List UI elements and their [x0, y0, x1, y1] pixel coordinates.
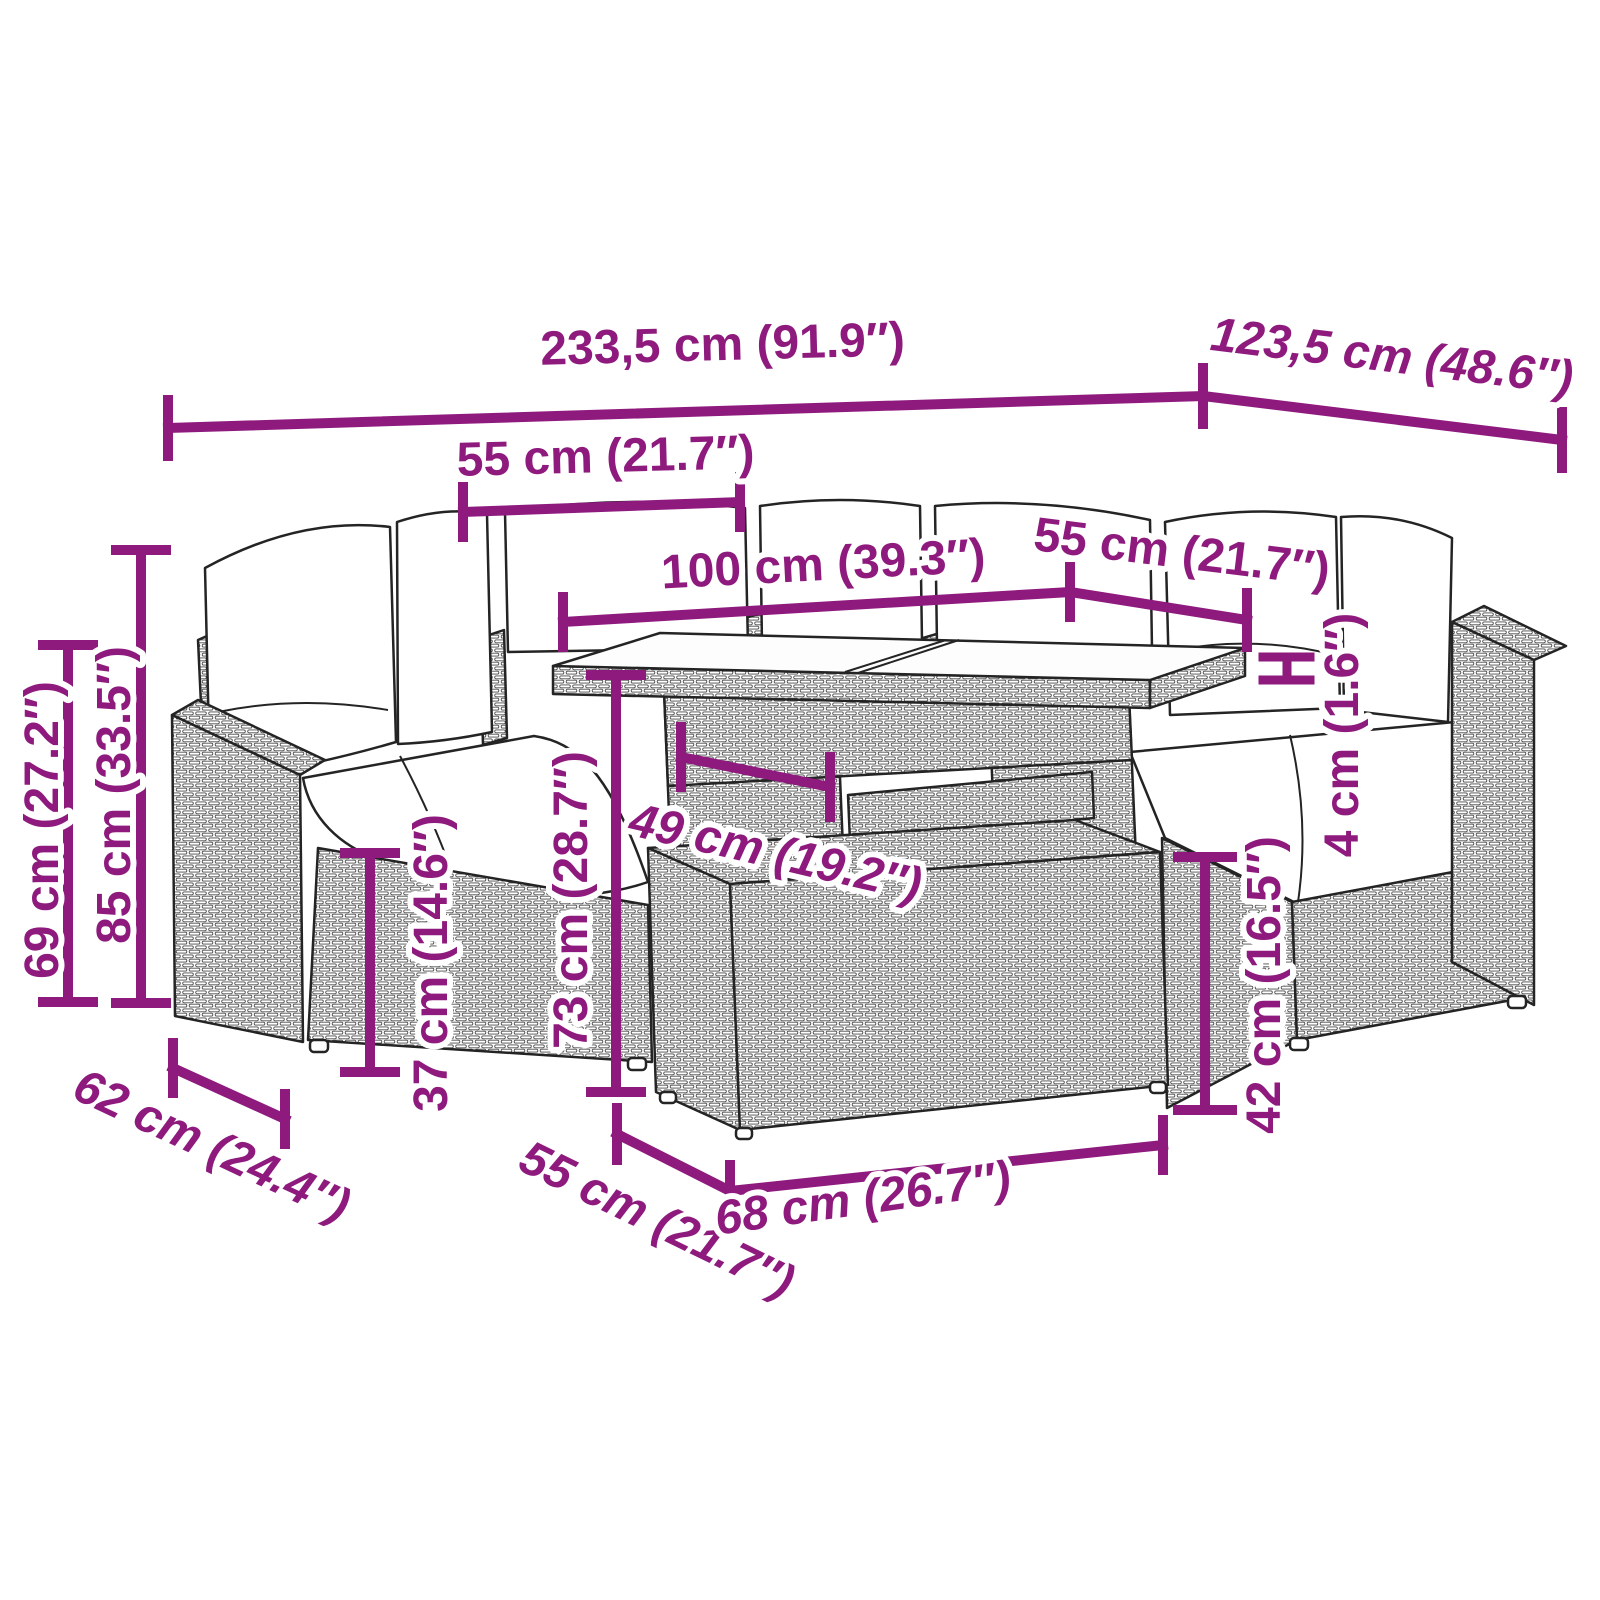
dim-label-overall-width: 233,5 cm (91.9″): [540, 313, 906, 376]
dim-overall-depth: [1203, 396, 1562, 468]
dimension-diagram: 233,5 cm (91.9″) 123,5 cm (48.6″) 55 cm …: [0, 0, 1600, 1600]
furniture-foot: [1150, 1082, 1166, 1093]
ottoman-side: [648, 848, 740, 1130]
dim-label-ottoman-width: 68 cm (26.7″): [712, 1152, 1014, 1246]
furniture-foot: [628, 1058, 646, 1070]
furniture-foot: [1290, 1038, 1308, 1050]
furniture-foot: [660, 1092, 676, 1103]
furniture-foot: [310, 1040, 328, 1052]
furniture-foot: [1508, 996, 1526, 1008]
dim-label-total-height: 85 cm (33.5″): [88, 646, 141, 944]
dim-label-table-height: 73 cm (28.7″): [545, 751, 598, 1049]
dim-label-ottoman-height: 42 cm (16.5″): [1238, 836, 1291, 1134]
furniture-foot: [736, 1128, 752, 1139]
dim-label-armrest-height: 69 cm (27.2″): [16, 681, 69, 979]
dim-label-overall-depth: 123,5 cm (48.6″): [1208, 308, 1576, 405]
back-cushion: [397, 511, 492, 744]
ottoman-front: [730, 852, 1168, 1130]
dim-label-seat-height: 37 cm (14.6″): [405, 814, 458, 1112]
dim-label-tabletop-thickness: 4 cm (1.6″): [1316, 613, 1369, 857]
dimension-diagram-page: 233,5 cm (91.9″) 123,5 cm (48.6″) 55 cm …: [0, 0, 1600, 1600]
dim-label-section-width: 55 cm (21.7″): [456, 426, 755, 487]
right-armrest: [1452, 622, 1534, 1005]
